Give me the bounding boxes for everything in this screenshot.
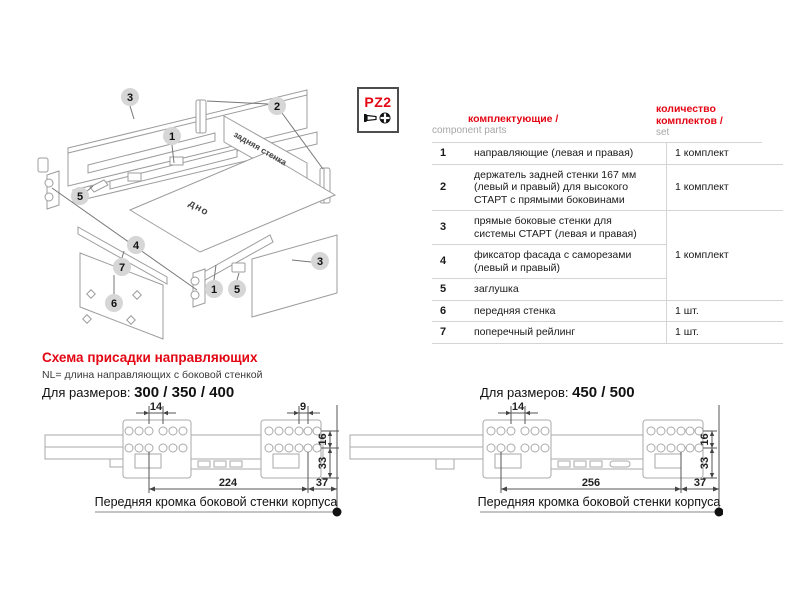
- dim-14: 14: [150, 402, 163, 413]
- dim-16: 16: [317, 433, 329, 445]
- size-title-values: 450 / 500: [572, 384, 635, 401]
- dim-37: 37: [694, 477, 706, 489]
- size-title-left: Для размеров: 300 / 350 / 400: [42, 384, 234, 401]
- table-row: 7 поперечный рейлинг 1 шт.: [432, 322, 783, 344]
- row-desc: держатель задней стенки 167 мм (левый и …: [472, 164, 667, 211]
- dim-16: 16: [699, 433, 711, 445]
- row-num: 7: [432, 322, 472, 344]
- table-row: 6 передняя стенка 1 шт.: [432, 300, 783, 322]
- row-qty: 1 комплект: [667, 164, 784, 211]
- back-wall-holder-left: [196, 100, 206, 133]
- exploded-drawer-diagram: задняя стенка дно 3 1 2 5 4 7 6 1 5: [30, 5, 365, 340]
- dim-224: 224: [219, 477, 238, 489]
- pozidriv-screwdriver-icon: [363, 111, 393, 125]
- row-desc: передняя стенка: [472, 300, 667, 322]
- callout-plug-right: 5: [234, 284, 240, 296]
- callout-wall-right: 3: [317, 256, 323, 268]
- callout-wall-left: 3: [127, 92, 133, 104]
- callout-holders: 2: [274, 101, 280, 113]
- drilling-drawing-450-500: 14 16 33 256 37 Передняя кромка боковой …: [348, 402, 723, 522]
- pz2-tool-badge: PZ2: [357, 87, 399, 133]
- header-qty-en: set: [656, 127, 762, 139]
- table-row: 1 направляющие (левая и правая) 1 компле…: [432, 143, 783, 164]
- row-num: 2: [432, 164, 472, 211]
- callout-plug-left: 5: [77, 191, 83, 203]
- pz2-label: PZ2: [364, 95, 391, 110]
- callout-railing: 7: [119, 262, 125, 274]
- callout-rail-right: 1: [211, 284, 217, 296]
- parts-table-header: комплектующие / component parts количест…: [432, 103, 762, 143]
- header-qty-ru: количество комплектов /: [656, 103, 762, 127]
- row-qty: 1 комплект: [667, 143, 784, 164]
- callout-rail-left: 1: [169, 131, 175, 143]
- row-num: 6: [432, 300, 472, 322]
- drilling-drawing-300-400: 14 9 16 33 224 37 Передняя кромка боково…: [40, 402, 345, 522]
- size-title-values: 300 / 350 / 400: [134, 384, 234, 401]
- row-qty: 1 шт.: [667, 322, 784, 344]
- row-desc: прямые боковые стенки для системы СТАРТ …: [472, 211, 667, 245]
- header-parts-en: component parts: [432, 125, 648, 137]
- table-row: 3 прямые боковые стенки для системы СТАР…: [432, 211, 783, 245]
- dim-33: 33: [317, 457, 329, 469]
- right-side-wall: [252, 235, 337, 317]
- row-qty: 1 шт.: [667, 300, 784, 322]
- row-desc: фиксатор фасада с саморезами (левый и пр…: [472, 245, 667, 279]
- size-title-prefix: Для размеров:: [42, 385, 130, 400]
- row-num: 5: [432, 279, 472, 301]
- row-num: 4: [432, 245, 472, 279]
- row-desc: поперечный рейлинг: [472, 322, 667, 344]
- row-desc: направляющие (левая и правая): [472, 143, 667, 164]
- header-parts-ru: комплектующие /: [468, 113, 648, 125]
- table-row: 2 держатель задней стенки 167 мм (левый …: [432, 164, 783, 211]
- callout-front-panel: 6: [111, 298, 117, 310]
- drilling-note: NL= длина направляющих с боковой стенкой: [42, 369, 263, 381]
- row-qty-merged: 1 комплект: [667, 211, 784, 301]
- row-desc: заглушка: [472, 279, 667, 301]
- row-num: 3: [432, 211, 472, 245]
- dim-37: 37: [316, 477, 328, 489]
- plug-right: [232, 263, 245, 272]
- parts-table: комплектующие / component parts количест…: [432, 103, 762, 344]
- dim-14: 14: [512, 402, 525, 413]
- dim-33: 33: [699, 457, 711, 469]
- fixator-left: [47, 171, 59, 209]
- size-title-right: Для размеров: 450 / 500: [480, 384, 635, 401]
- row-num: 1: [432, 143, 472, 164]
- drilling-heading: Схема присадки направляющих: [42, 350, 257, 365]
- front-edge-caption: Передняя кромка боковой стенки корпуса: [478, 495, 721, 509]
- dim-256: 256: [582, 477, 600, 489]
- dim-9: 9: [300, 402, 306, 413]
- callout-fixator: 4: [133, 240, 140, 252]
- front-edge-caption: Передняя кромка боковой стенки корпуса: [95, 495, 338, 509]
- size-title-prefix: Для размеров:: [480, 385, 568, 400]
